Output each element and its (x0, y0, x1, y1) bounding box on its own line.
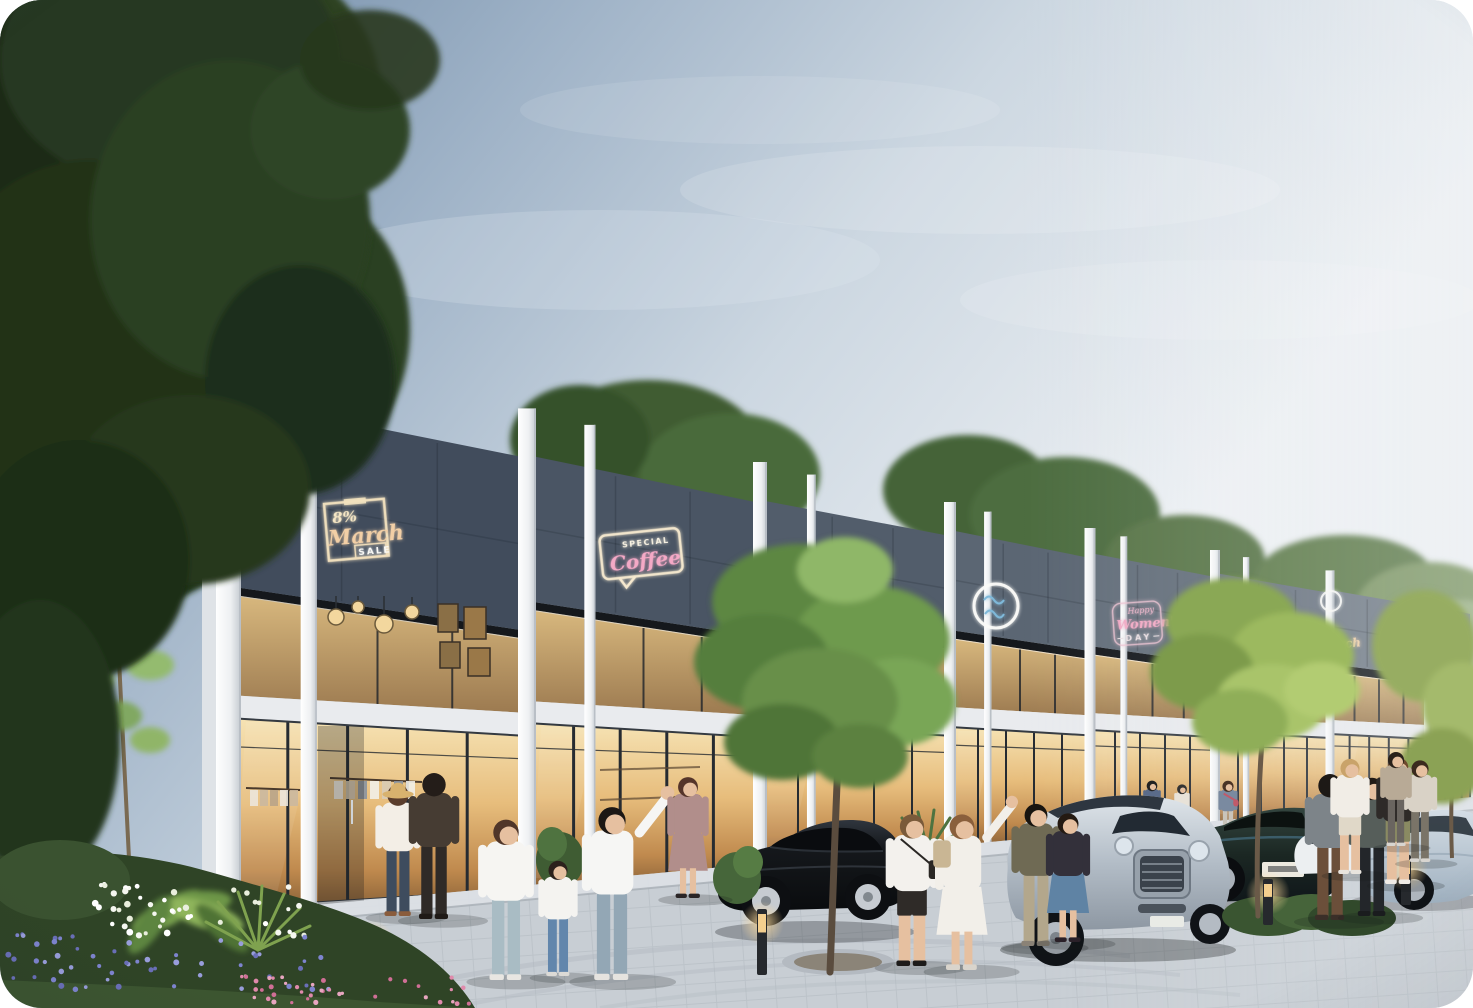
vignette (0, 0, 1473, 1008)
shophouse-row-render: 8% March SALE SPECIAL Coffee IC Happy Wo… (0, 0, 1473, 1008)
